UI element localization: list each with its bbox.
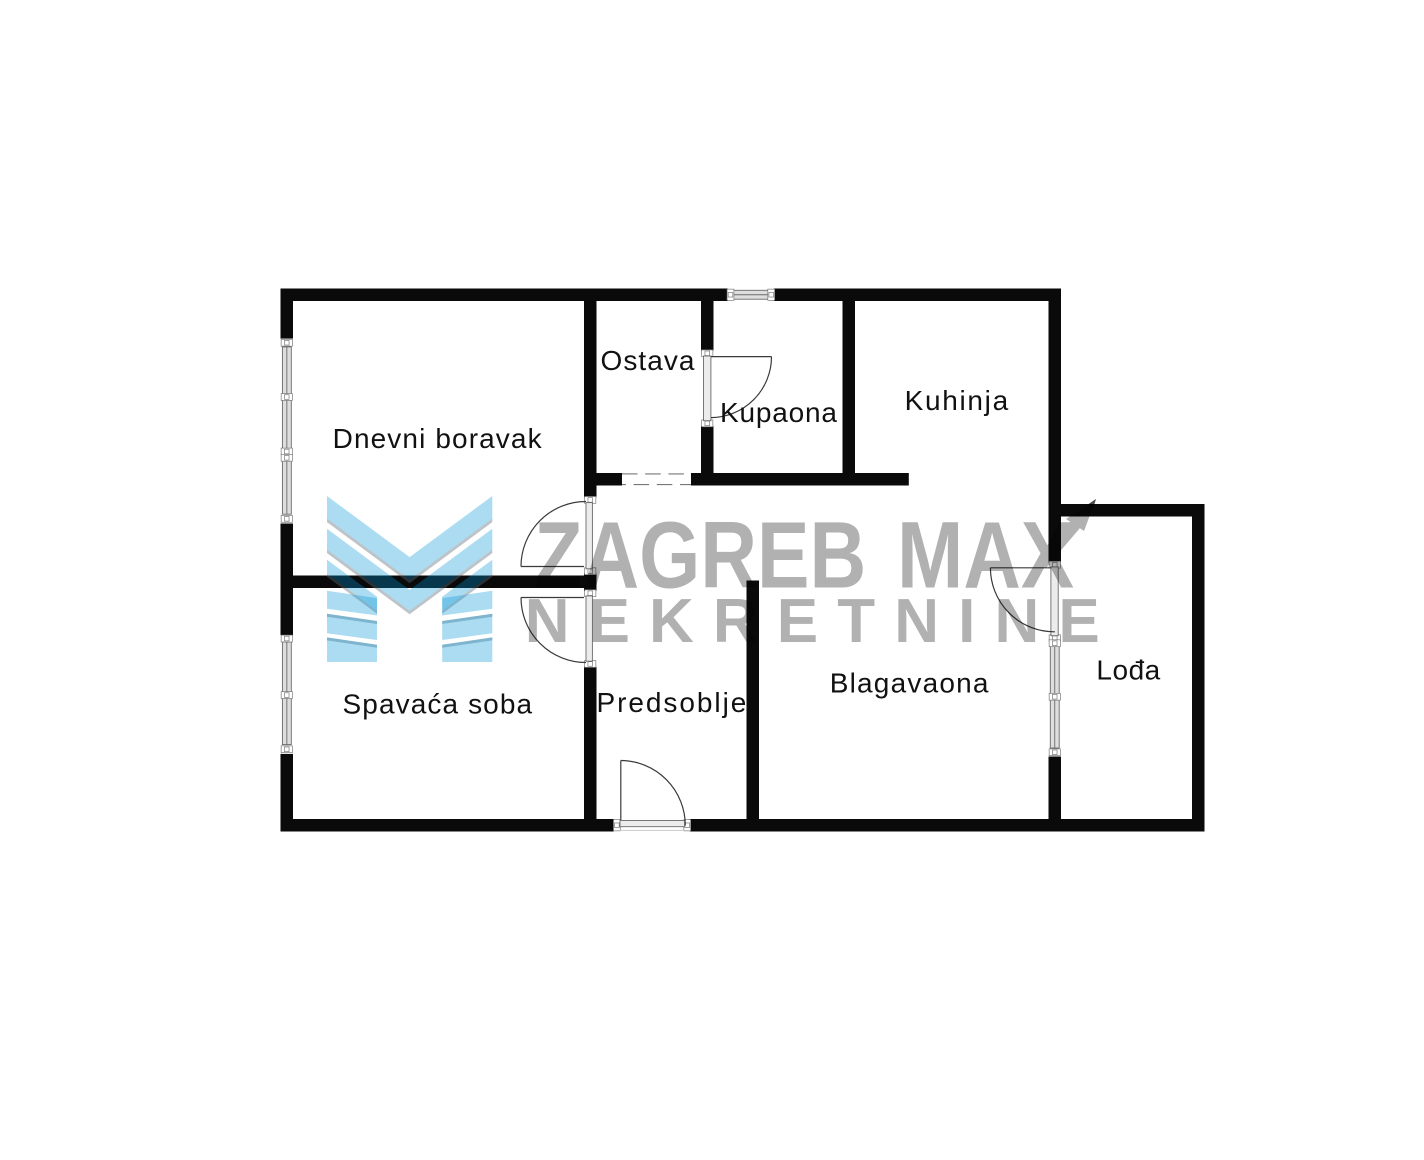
- svg-text:Kuhinja: Kuhinja: [905, 385, 1009, 416]
- svg-text:Ostava: Ostava: [601, 345, 695, 376]
- svg-text:Kupaona: Kupaona: [720, 397, 837, 428]
- svg-text:Predsoblje: Predsoblje: [596, 687, 746, 718]
- svg-text:NEKRETNINE: NEKRETNINE: [525, 587, 1100, 656]
- svg-text:Blagavaona: Blagavaona: [830, 667, 989, 698]
- svg-text:Spavaća soba: Spavaća soba: [343, 688, 533, 719]
- svg-text:Lođa: Lođa: [1096, 655, 1160, 686]
- svg-text:Dnevni boravak: Dnevni boravak: [333, 423, 543, 454]
